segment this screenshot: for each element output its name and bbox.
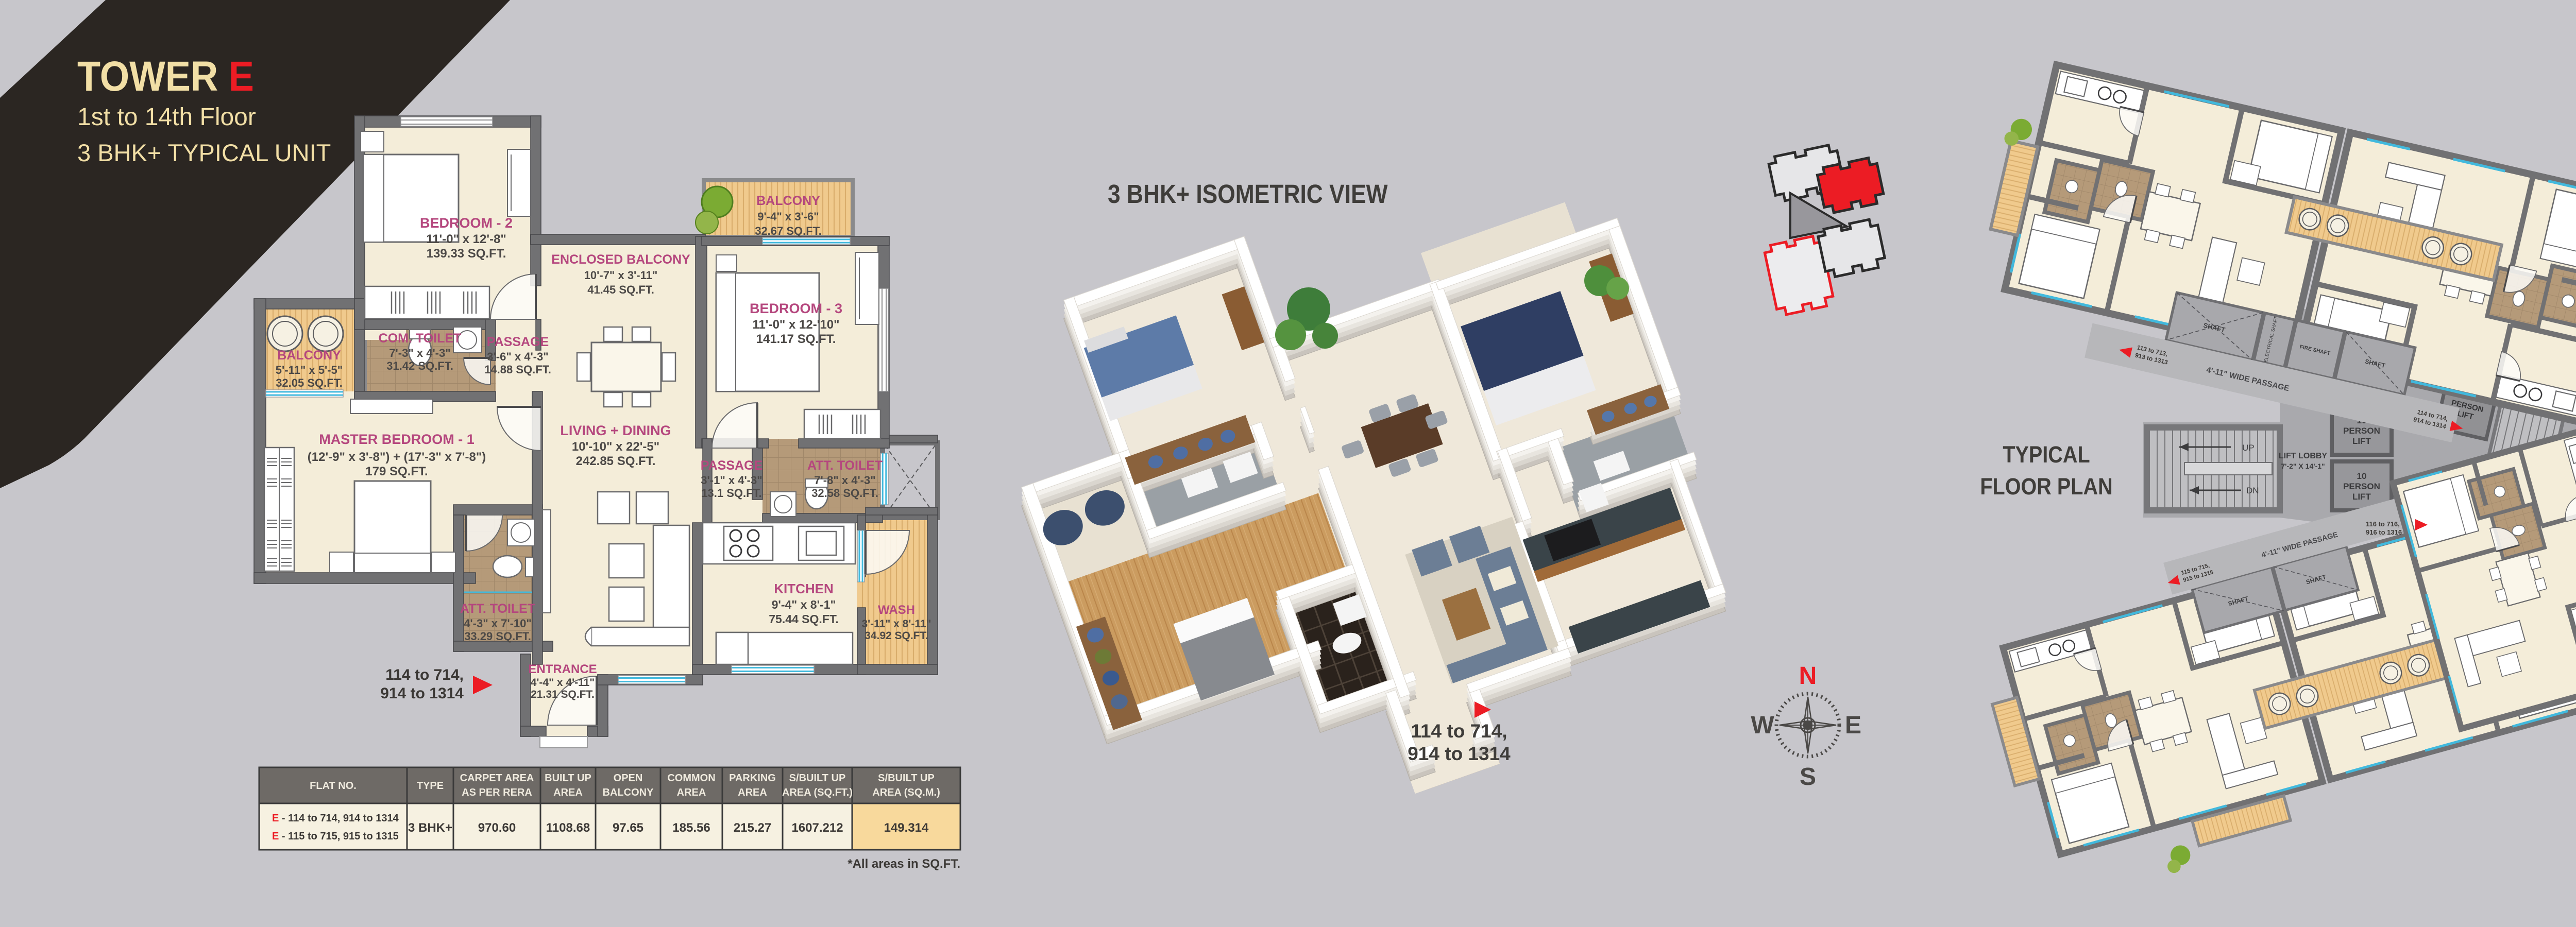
- svg-text:*All areas in SQ.FT.: *All areas in SQ.FT.: [848, 857, 960, 871]
- svg-text:14.88 SQ.FT.: 14.88 SQ.FT.: [484, 363, 551, 376]
- svg-text:3'-11" x 8'-11": 3'-11" x 8'-11": [862, 618, 931, 630]
- svg-text:LIFT: LIFT: [2352, 492, 2371, 502]
- svg-text:TYPE: TYPE: [417, 780, 444, 792]
- svg-text:914 to 1314: 914 to 1314: [380, 685, 464, 702]
- svg-text:3 BHK+: 3 BHK+: [408, 821, 452, 835]
- svg-text:ATT. TOILET: ATT. TOILET: [807, 458, 883, 473]
- svg-text:3'-6" x 4'-3": 3'-6" x 4'-3": [487, 350, 548, 363]
- svg-text:21.31 SQ.FT.: 21.31 SQ.FT.: [531, 689, 595, 700]
- svg-text:W: W: [1751, 712, 1774, 739]
- svg-text:13.1 SQ.FT.: 13.1 SQ.FT.: [701, 487, 761, 500]
- svg-text:KITCHEN: KITCHEN: [774, 581, 834, 596]
- svg-text:COM. TOILET: COM. TOILET: [379, 331, 462, 346]
- svg-text:179 SQ.FT.: 179 SQ.FT.: [365, 465, 428, 478]
- svg-text:1607.212: 1607.212: [791, 821, 843, 835]
- svg-text:BUILT UP: BUILT UP: [545, 772, 591, 784]
- svg-text:4'-4" x 4'-11": 4'-4" x 4'-11": [531, 677, 595, 689]
- svg-text:S: S: [1800, 763, 1816, 791]
- svg-text:1st to 14th Floor: 1st to 14th Floor: [77, 104, 256, 131]
- svg-text:114 to 714,: 114 to 714,: [1411, 720, 1507, 742]
- svg-text:ATT. TOILET: ATT. TOILET: [460, 602, 535, 616]
- svg-text:MASTER BEDROOM - 1: MASTER BEDROOM - 1: [319, 432, 474, 447]
- svg-text:7'-3" x 4'-3": 7'-3" x 4'-3": [389, 347, 450, 359]
- svg-text:AREA (SQ.FT.): AREA (SQ.FT.): [782, 787, 853, 798]
- svg-text:97.65: 97.65: [613, 821, 643, 835]
- svg-text:34.92 SQ.FT.: 34.92 SQ.FT.: [865, 630, 928, 642]
- svg-text:E - 114 to 714, 914 to 1314: E - 114 to 714, 914 to 1314: [272, 813, 399, 824]
- svg-text:11'-0" x 12-'10": 11'-0" x 12-'10": [753, 318, 840, 332]
- svg-text:ENTRANCE: ENTRANCE: [528, 662, 597, 676]
- svg-text:970.60: 970.60: [478, 821, 516, 835]
- svg-text:S/BUILT UP: S/BUILT UP: [878, 772, 935, 784]
- svg-text:AREA: AREA: [738, 787, 767, 798]
- svg-text:139.33 SQ.FT.: 139.33 SQ.FT.: [427, 247, 506, 261]
- svg-text:914 to 1314: 914 to 1314: [1408, 743, 1511, 764]
- svg-text:AREA: AREA: [677, 787, 706, 798]
- svg-text:9'-4" x 8'-1": 9'-4" x 8'-1": [772, 598, 836, 611]
- svg-text:TYPICAL: TYPICAL: [2003, 442, 2090, 468]
- svg-text:E: E: [1845, 712, 1861, 739]
- svg-text:CARPET AREA: CARPET AREA: [460, 772, 534, 784]
- svg-text:11'-0" x 12'-8": 11'-0" x 12'-8": [426, 232, 506, 246]
- svg-text:141.17 SQ.FT.: 141.17 SQ.FT.: [756, 332, 836, 346]
- svg-text:BALCONY: BALCONY: [603, 787, 654, 798]
- svg-text:PASSAGE: PASSAGE: [487, 335, 549, 349]
- svg-text:149.314: 149.314: [884, 821, 929, 835]
- svg-text:TOWER E: TOWER E: [77, 52, 254, 100]
- svg-text:PASSAGE: PASSAGE: [701, 458, 762, 473]
- svg-text:BEDROOM - 2: BEDROOM - 2: [420, 215, 513, 231]
- svg-text:N: N: [1799, 662, 1817, 690]
- svg-text:3 BHK+ ISOMETRIC VIEW: 3 BHK+ ISOMETRIC VIEW: [1108, 180, 1388, 209]
- svg-text:7'-2" X 14'-1": 7'-2" X 14'-1": [2281, 462, 2325, 470]
- svg-text:3'-1" x 4'-3": 3'-1" x 4'-3": [701, 474, 762, 487]
- svg-text:FLAT NO.: FLAT NO.: [310, 780, 357, 792]
- svg-text:S/BUILT UP: S/BUILT UP: [789, 772, 846, 784]
- svg-text:916 to 1316: 916 to 1316: [2366, 528, 2402, 536]
- svg-text:1108.68: 1108.68: [546, 821, 590, 835]
- svg-text:33.29 SQ.FT.: 33.29 SQ.FT.: [464, 630, 531, 643]
- svg-text:(12'-9" x 3'-8") + (17'-3" x 7: (12'-9" x 3'-8") + (17'-3" x 7'-8"): [308, 450, 486, 464]
- svg-text:32.67 SQ.FT.: 32.67 SQ.FT.: [755, 225, 822, 237]
- svg-text:215.27: 215.27: [734, 821, 771, 835]
- svg-text:75.44 SQ.FT.: 75.44 SQ.FT.: [769, 612, 839, 626]
- svg-text:32.58 SQ.FT.: 32.58 SQ.FT.: [811, 487, 878, 500]
- svg-text:32.05 SQ.FT.: 32.05 SQ.FT.: [276, 376, 343, 389]
- svg-text:E - 115 to 715, 915 to 1315: E - 115 to 715, 915 to 1315: [272, 831, 399, 842]
- svg-text:31.42 SQ.FT.: 31.42 SQ.FT.: [386, 359, 453, 372]
- svg-text:PERSON: PERSON: [2343, 482, 2380, 491]
- svg-text:7'-8" x 4'-3": 7'-8" x 4'-3": [814, 474, 875, 487]
- svg-text:4'-3" x 7'-10": 4'-3" x 7'-10": [464, 617, 532, 630]
- svg-text:PERSON: PERSON: [2343, 426, 2380, 436]
- svg-text:3 BHK+ TYPICAL UNIT: 3 BHK+ TYPICAL UNIT: [77, 139, 331, 166]
- svg-text:AREA (SQ.M.): AREA (SQ.M.): [872, 787, 940, 798]
- svg-text:10'-7" x 3'-11": 10'-7" x 3'-11": [584, 269, 658, 282]
- svg-text:FLOOR PLAN: FLOOR PLAN: [1980, 474, 2112, 500]
- svg-text:DN: DN: [2246, 486, 2259, 495]
- svg-text:LIFT: LIFT: [2352, 436, 2371, 446]
- svg-text:9'-4" x 3'-6": 9'-4" x 3'-6": [757, 210, 819, 223]
- svg-text:UP: UP: [2242, 443, 2255, 453]
- svg-text:10: 10: [2357, 471, 2367, 481]
- svg-text:185.56: 185.56: [672, 821, 710, 835]
- svg-text:OPEN: OPEN: [614, 772, 643, 784]
- svg-text:BEDROOM - 3: BEDROOM - 3: [750, 301, 842, 316]
- svg-text:5'-11" x 5'-5": 5'-11" x 5'-5": [276, 364, 343, 376]
- svg-text:PARKING: PARKING: [729, 772, 776, 784]
- svg-text:41.45 SQ.FT.: 41.45 SQ.FT.: [587, 283, 654, 296]
- svg-text:BALCONY: BALCONY: [756, 194, 820, 208]
- svg-text:WASH: WASH: [878, 603, 915, 617]
- svg-text:AS PER RERA: AS PER RERA: [462, 787, 532, 798]
- svg-text:AREA: AREA: [553, 787, 583, 798]
- svg-text:116 to 716,: 116 to 716,: [2366, 520, 2400, 528]
- svg-text:242.85 SQ.FT.: 242.85 SQ.FT.: [576, 454, 656, 468]
- svg-text:10'-10" x 22'-5": 10'-10" x 22'-5": [572, 440, 659, 454]
- svg-text:ENCLOSED BALCONY: ENCLOSED BALCONY: [551, 252, 690, 267]
- svg-text:114 to 714,: 114 to 714,: [385, 666, 464, 683]
- svg-text:COMMON: COMMON: [667, 772, 715, 784]
- svg-text:BALCONY: BALCONY: [277, 348, 341, 363]
- svg-text:LIVING + DINING: LIVING + DINING: [560, 423, 671, 438]
- svg-text:LIFT LOBBY: LIFT LOBBY: [2279, 452, 2328, 460]
